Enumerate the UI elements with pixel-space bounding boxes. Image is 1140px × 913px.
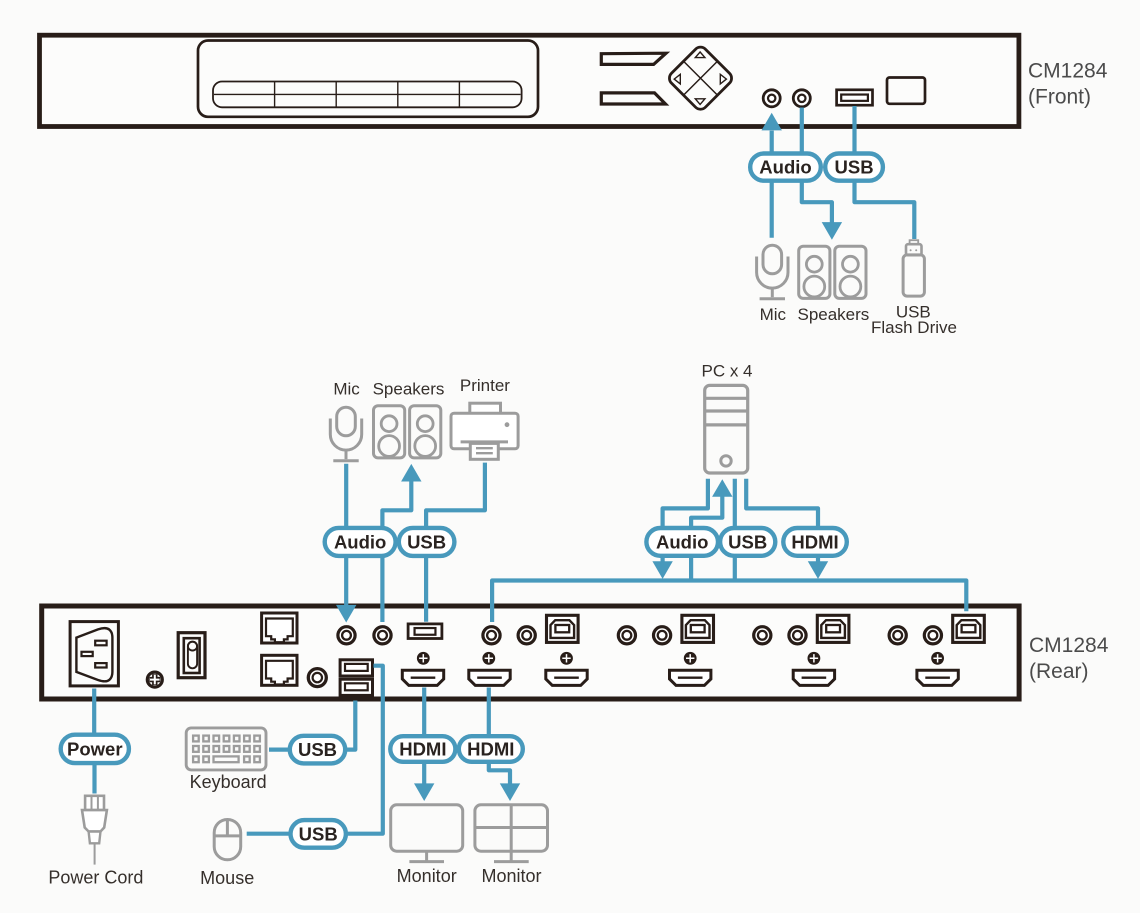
svg-text:Keyboard: Keyboard: [190, 772, 267, 792]
svg-text:Speakers: Speakers: [797, 305, 869, 324]
svg-text:USB: USB: [299, 823, 338, 844]
svg-text:USB: USB: [407, 531, 446, 552]
svg-text:PC x 4: PC x 4: [701, 361, 752, 380]
svg-text:Power: Power: [67, 738, 123, 759]
svg-text:Power Cord: Power Cord: [48, 867, 143, 887]
svg-text:HDMI: HDMI: [467, 738, 514, 759]
svg-text:Printer: Printer: [460, 376, 510, 395]
svg-text:Monitor: Monitor: [397, 866, 457, 886]
svg-text:USB: USB: [728, 531, 767, 552]
svg-text:CM1284: CM1284: [1029, 634, 1109, 657]
svg-text:USB: USB: [835, 157, 874, 178]
svg-text:Audio: Audio: [759, 157, 811, 178]
svg-text:Mouse: Mouse: [200, 868, 254, 888]
svg-text:(Rear): (Rear): [1029, 660, 1089, 683]
svg-text:Flash Drive: Flash Drive: [871, 318, 957, 337]
svg-text:(Front): (Front): [1028, 86, 1091, 109]
svg-text:Audio: Audio: [656, 531, 708, 552]
svg-text:Monitor: Monitor: [481, 866, 541, 886]
svg-text:Audio: Audio: [334, 531, 386, 552]
svg-text:HDMI: HDMI: [399, 738, 446, 759]
svg-text:CM1284: CM1284: [1028, 60, 1108, 83]
svg-text:Mic: Mic: [333, 379, 360, 398]
svg-text:USB: USB: [298, 739, 337, 760]
svg-text:Mic: Mic: [760, 305, 787, 324]
svg-text:Speakers: Speakers: [373, 379, 445, 398]
svg-text:HDMI: HDMI: [791, 531, 838, 552]
